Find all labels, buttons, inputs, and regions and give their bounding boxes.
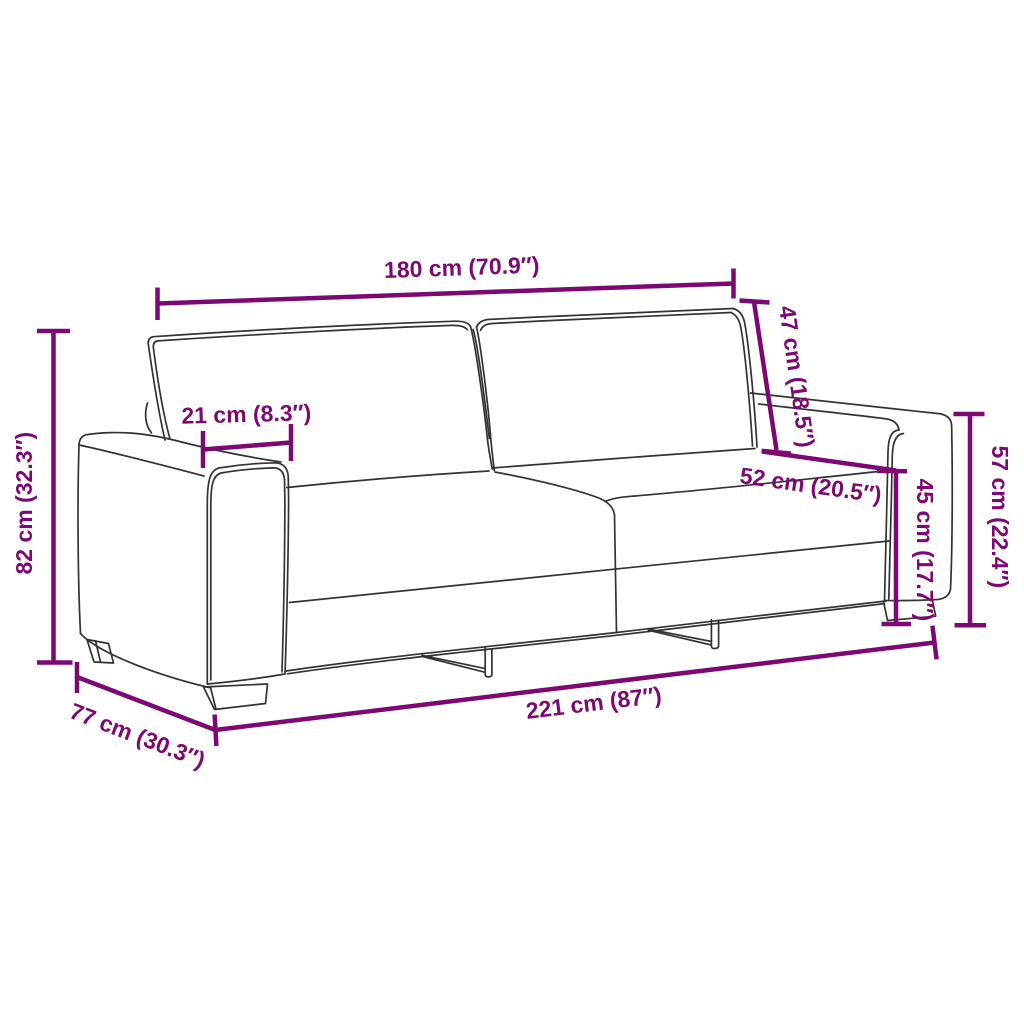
svg-text:21 cm (8.3″): 21 cm (8.3″) [181,399,312,428]
svg-text:57 cm (22.4″): 57 cm (22.4″) [987,446,1013,589]
svg-text:82 cm (32.3″): 82 cm (32.3″) [11,432,37,575]
svg-text:45 cm (17.7″): 45 cm (17.7″) [912,479,938,622]
svg-text:180 cm (70.9″): 180 cm (70.9″) [384,252,540,283]
